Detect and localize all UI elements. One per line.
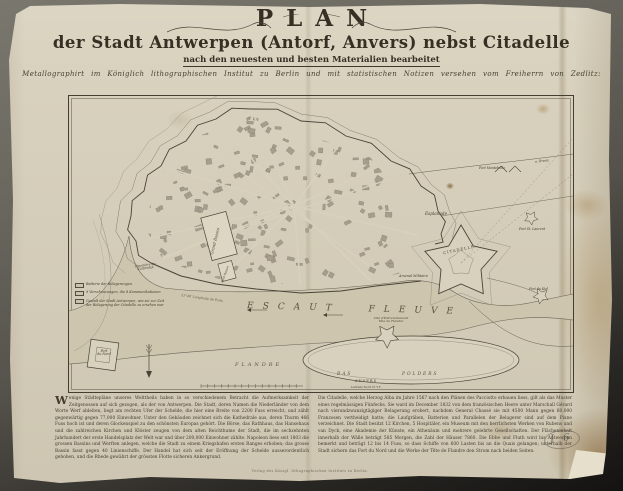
map-drawing <box>69 96 573 392</box>
map-frame: ESCAUT FLEUVE 21°48′ Longitude de Paris … <box>68 95 574 393</box>
photo-backdrop: PLAN der Stadt Antwerpen (Antorf, Anvers… <box>0 0 623 491</box>
entrenchement-label: Cité d'EntrenchementTête de Flandre <box>359 317 423 323</box>
flandre-label: FLANDRE <box>235 363 282 368</box>
esplanade-label: Esplanade <box>425 212 447 216</box>
bas-label: BAS <box>337 373 352 378</box>
legend-symbol-entrenchment <box>75 291 84 296</box>
title-flourish <box>165 14 458 44</box>
notes-column-right: Die Citadelle, welche Herzog Alba im Jah… <box>318 396 572 462</box>
legend-symbol-city-outline <box>75 299 84 304</box>
publisher-line: Verlag des Königl. lithographischen Inst… <box>160 469 460 473</box>
fort-montebello-label: Fort Montebello <box>479 167 505 170</box>
polders-label: POLDERS <box>402 373 439 378</box>
arsenal-label: Arsenal Militaire <box>399 275 428 279</box>
fort-du-nord-label: Fortdu Nord <box>91 350 117 357</box>
title-block: PLAN der Stadt Antwerpen (Antorf, Anvers… <box>0 6 623 78</box>
map-imprint-line: Metallographirt im Königlich lithographi… <box>0 70 623 78</box>
notes-dropcap: W <box>55 396 68 405</box>
map-sheet: PLAN der Stadt Antwerpen (Antorf, Anvers… <box>0 0 623 491</box>
legend-item: Batterie der Belagerungen <box>75 282 167 288</box>
map-edition-line: nach den neuesten und besten Materialien… <box>0 55 623 65</box>
fort-du-kiel-label: Fort du Kiel <box>529 288 548 291</box>
torn-corner-patch <box>568 440 612 482</box>
legend-item: 9 Verschanzungen, die 8 Kommunikationen <box>75 290 167 296</box>
fort-st-laurent-label: Fort St. Laurent <box>519 228 545 231</box>
pencil-inventory-mark: J 6 <box>550 432 573 445</box>
anvers-label: ANVERS <box>341 380 391 384</box>
map-legend: Batterie der Belagerungen 9 Verschanzung… <box>75 282 167 310</box>
legend-item: Gestalt der Stadt Antwerpen, wie sie zur… <box>75 299 167 308</box>
notes-column-left: Wenige Städtepläne unseres Welttheils ha… <box>55 396 309 462</box>
anvers-note-label: Latitude Nord 51°13′ <box>335 386 397 389</box>
statistical-notes: Wenige Städtepläne unseres Welttheils ha… <box>55 396 572 462</box>
legend-symbol-battery <box>75 283 84 288</box>
